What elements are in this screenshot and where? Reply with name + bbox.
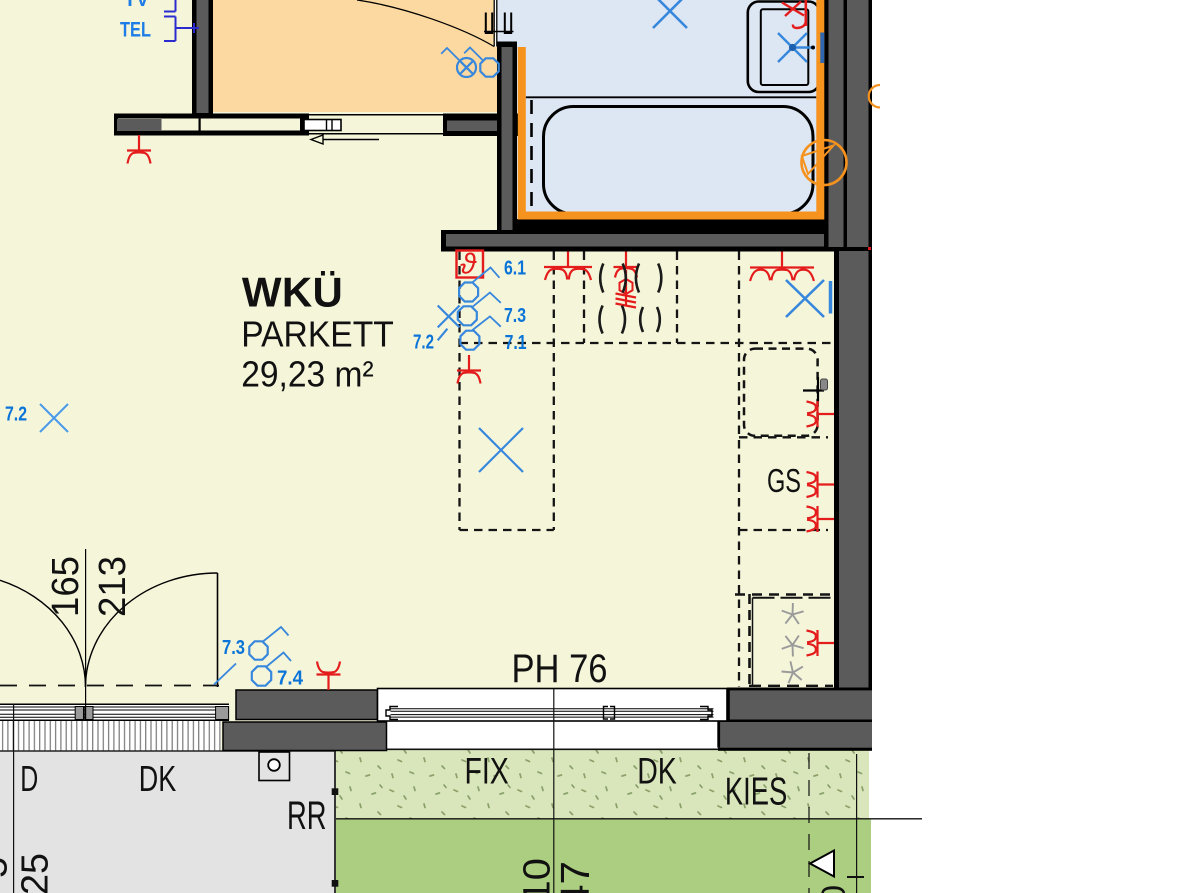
svg-text:PH 76: PH 76 [512,647,608,691]
svg-text:D: D [20,758,38,799]
svg-text:165: 165 [45,556,87,617]
svg-text:FIX: FIX [465,751,509,792]
svg-text:7.2: 7.2 [5,402,27,425]
svg-text:7.3: 7.3 [222,636,245,659]
svg-text:213: 213 [92,556,134,617]
svg-text:TV: TV [124,0,149,11]
svg-text:RR: RR [287,794,327,838]
svg-text:DK: DK [637,751,677,792]
svg-text:ϑ: ϑ [460,249,477,281]
svg-text:7.1: 7.1 [505,331,527,354]
svg-text:DK: DK [139,758,177,799]
svg-text:7.2: 7.2 [413,331,434,354]
svg-text:WKÜ: WKÜ [242,269,343,316]
svg-text:29,23 m²: 29,23 m² [241,354,374,395]
svg-text:6.1: 6.1 [504,256,526,279]
svg-text:7.3: 7.3 [504,304,526,327]
svg-text:GS: GS [767,462,801,499]
svg-text:7.4: 7.4 [277,666,304,689]
svg-text:150: 150 [815,885,853,893]
svg-text:225: 225 [15,853,57,893]
svg-text:TEL: TEL [120,18,151,41]
svg-text:KIES: KIES [725,771,787,814]
svg-text:PARKETT: PARKETT [241,314,394,355]
svg-text:47: 47 [552,861,598,893]
